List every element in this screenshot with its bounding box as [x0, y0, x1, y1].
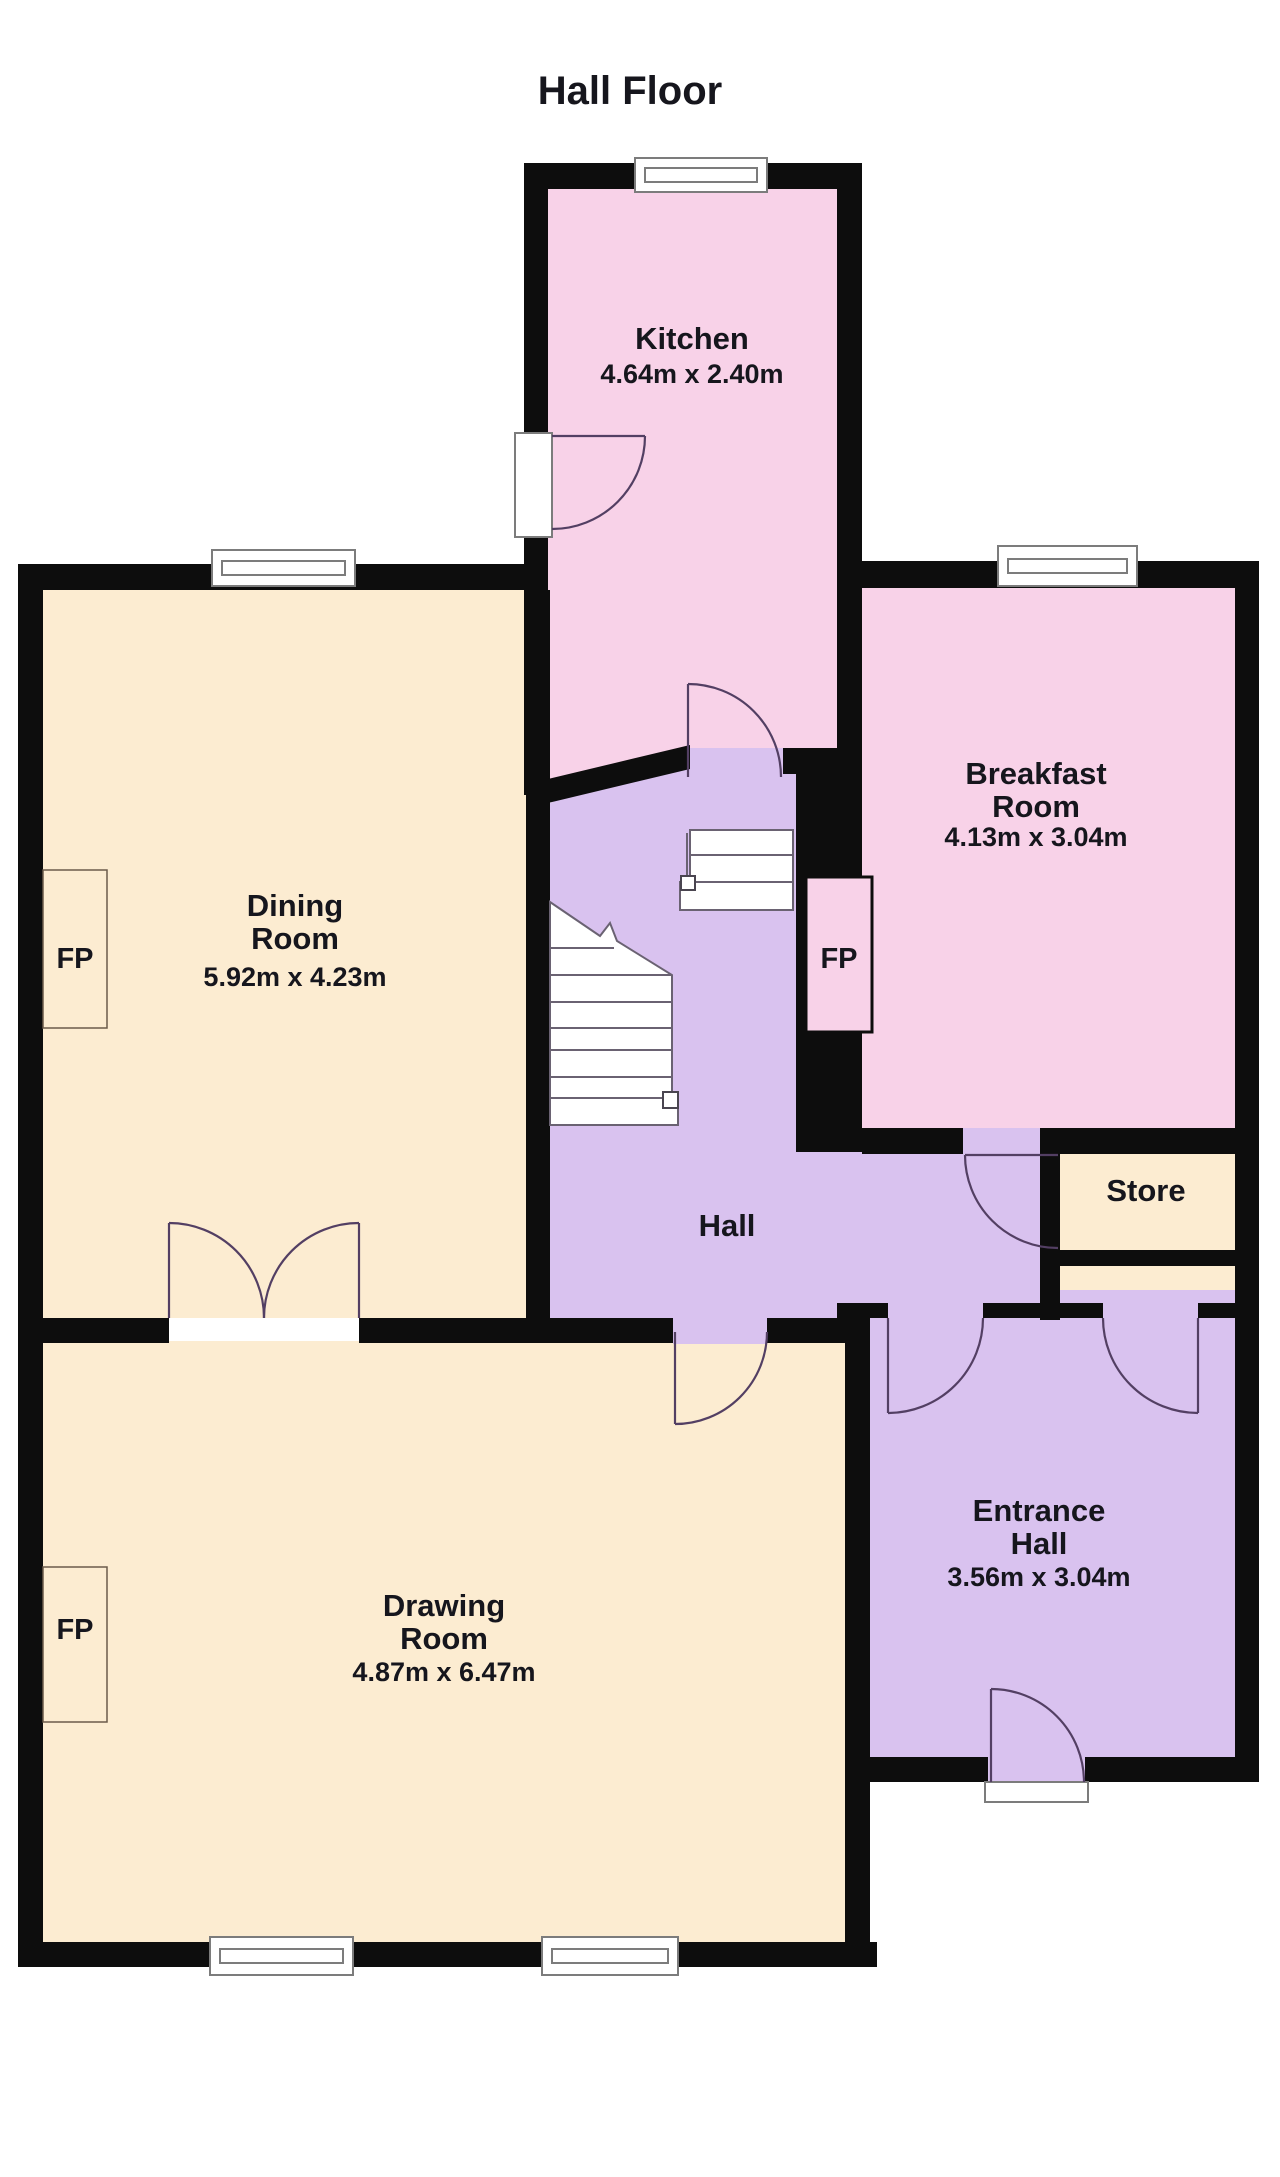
breakfast-name-line2: Room [992, 789, 1080, 824]
wall-store-left [1040, 1128, 1060, 1320]
kitchen-name: Kitchen [635, 321, 749, 356]
wall-kitchen-right [837, 163, 862, 772]
wall-drawing-entrance-divider [845, 1303, 870, 1967]
window-kitchen-top [635, 158, 767, 192]
wall-entrance-top-right [1198, 1303, 1259, 1318]
dining-name-line1: Dining [247, 888, 343, 923]
wall-drawing-top-left [18, 1318, 169, 1343]
wall-breakfast-bottom-left [862, 1128, 963, 1154]
stair-newel-upper [681, 876, 695, 890]
room-hall-lower [550, 1128, 1058, 1318]
floor-plan: Hall Floor Kitchen 4.64m x 2.40m Dining … [0, 0, 1280, 2177]
window-drawing-bottom-left [210, 1937, 353, 1975]
breakfast-name-line1: Breakfast [965, 756, 1106, 791]
room-kitchen [548, 189, 837, 781]
dining-dims: 5.92m x 4.23m [203, 962, 386, 992]
breakfast-dims: 4.13m x 3.04m [944, 822, 1127, 852]
wall-left-outer [18, 564, 43, 1967]
window-dining-top [212, 550, 355, 586]
wall-entrance-bottom-left [845, 1757, 988, 1782]
window-drawing-bottom-right [542, 1937, 678, 1975]
drawing-dims: 4.87m x 6.47m [352, 1657, 535, 1687]
wall-dining-right [526, 590, 550, 1341]
kitchen-side-door-opening [515, 433, 552, 537]
entrance-name-line2: Hall [1011, 1526, 1068, 1561]
fireplace-dining-label: FP [56, 943, 93, 975]
stair-newel-lower [663, 1092, 678, 1108]
wall-entrance-top-middle [983, 1303, 1103, 1318]
store-name: Store [1106, 1173, 1185, 1208]
wall-bottom-outer [18, 1942, 877, 1967]
fireplace-breakfast-label: FP [820, 943, 857, 975]
fireplace-drawing-label: FP [56, 1614, 93, 1646]
drawing-name-line1: Drawing [383, 1588, 505, 1623]
wall-right-outer [1235, 561, 1259, 1782]
window-breakfast-top [998, 546, 1137, 586]
hall-name: Hall [699, 1208, 756, 1243]
dining-name-line2: Room [251, 921, 339, 956]
wall-entrance-bottom-right [1085, 1757, 1259, 1782]
kitchen-dims: 4.64m x 2.40m [600, 359, 783, 389]
entrance-name-line1: Entrance [973, 1493, 1106, 1528]
wall-kitchen-bottom [783, 748, 862, 774]
wall-drawing-top-middle [359, 1318, 673, 1343]
wall-store-divider [1040, 1250, 1259, 1266]
drawing-name-line2: Room [400, 1621, 488, 1656]
front-door-threshold [985, 1782, 1088, 1802]
hall-drawing-doorway-floor [673, 1318, 767, 1344]
entrance-front-doorway-floor [988, 1757, 1085, 1784]
page-title: Hall Floor [538, 69, 722, 113]
room-breakfast-room [862, 588, 1235, 1128]
floor-plan-page: Hall Floor Kitchen 4.64m x 2.40m Dining … [0, 0, 1280, 2177]
stair-upper-flight [680, 830, 793, 910]
entrance-dims: 3.56m x 3.04m [947, 1562, 1130, 1592]
wall-breakfast-bottom-right [1058, 1128, 1259, 1154]
